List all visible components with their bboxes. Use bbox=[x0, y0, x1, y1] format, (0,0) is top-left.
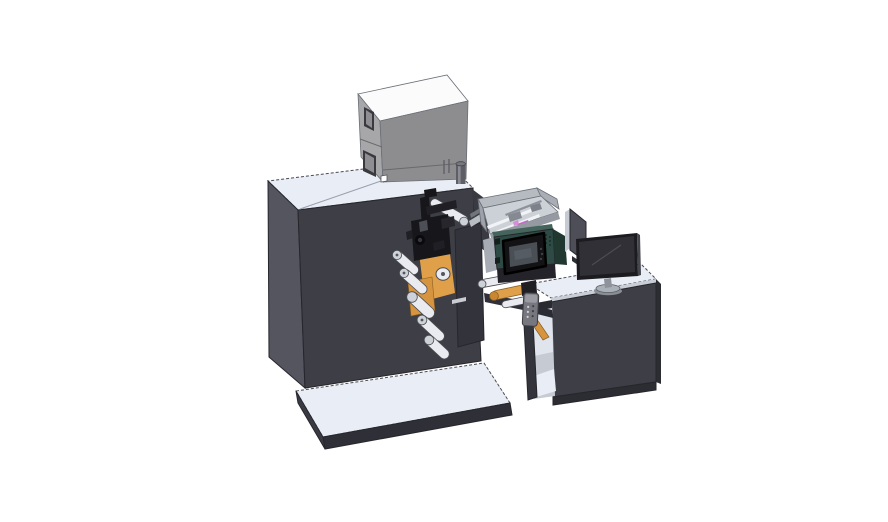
roller-2-axle bbox=[403, 272, 406, 275]
cad-render-canvas bbox=[0, 0, 888, 522]
monitor-neck bbox=[604, 278, 612, 288]
monitor-screen[interactable] bbox=[579, 236, 635, 276]
box-label bbox=[381, 175, 387, 182]
mech-hub-inner bbox=[418, 238, 422, 242]
divider-edge bbox=[565, 209, 570, 252]
cylinder-highlight bbox=[458, 164, 461, 184]
roller-top-cap bbox=[460, 217, 469, 226]
cylinder-top bbox=[456, 162, 466, 166]
desk-right-face bbox=[656, 279, 661, 384]
unwind-hub-axle bbox=[441, 272, 445, 276]
roller-5-cap bbox=[424, 335, 434, 345]
roller-1-axle bbox=[396, 254, 399, 257]
mech-block bbox=[419, 220, 428, 232]
desk-front-face bbox=[551, 283, 656, 397]
engine-clip-1 bbox=[495, 238, 500, 245]
web-roller-orange-cap bbox=[490, 292, 499, 301]
cad-render-stage bbox=[0, 0, 888, 522]
web-roller-white-1-cap bbox=[478, 280, 486, 288]
pendant-top-section bbox=[525, 294, 537, 303]
roller-4-axle bbox=[421, 319, 424, 322]
pendant-control bbox=[521, 280, 539, 326]
cylinder-body bbox=[456, 164, 466, 184]
engine-clip-2 bbox=[495, 257, 500, 264]
exhaust-cylinder bbox=[456, 162, 466, 184]
roller-3-cap bbox=[407, 292, 418, 303]
control-box bbox=[358, 75, 468, 182]
